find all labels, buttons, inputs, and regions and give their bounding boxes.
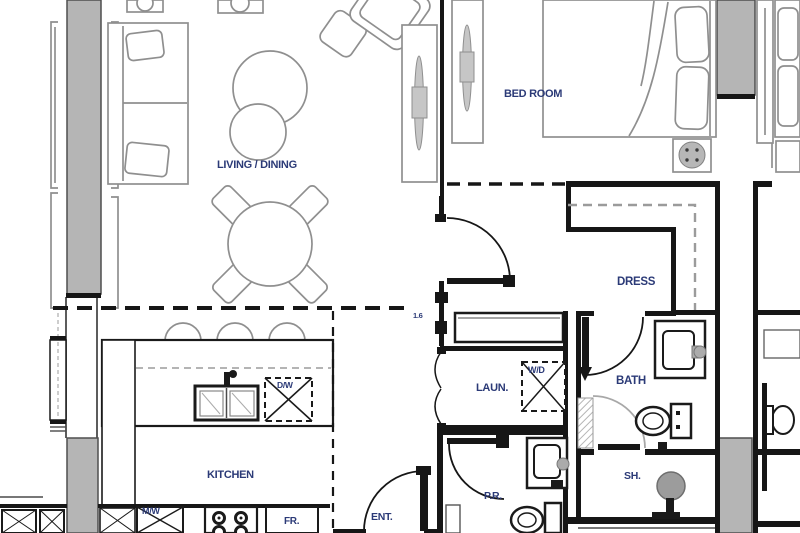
label-powder-room: P.R. — [484, 491, 502, 502]
dining-table-chairs — [210, 184, 330, 305]
label-shower: SH. — [624, 471, 641, 482]
sofa — [108, 23, 188, 184]
stove — [205, 507, 257, 533]
powder-room-toilet — [511, 503, 561, 533]
label-entry: ENT. — [371, 512, 393, 523]
coffee-tables — [230, 51, 307, 160]
adjacent-unit-fragments — [757, 0, 800, 434]
label-dishwasher: D/W — [277, 381, 293, 390]
label-microwave: M/W — [142, 507, 160, 516]
laundry-bifold-door — [435, 352, 441, 424]
hall-closet — [455, 313, 563, 342]
label-dress: DRESS — [617, 277, 655, 289]
label-bath: BATH — [616, 376, 646, 388]
side-tables — [127, 0, 263, 13]
label-kitchen: KITCHEN — [207, 470, 254, 481]
bed — [543, 0, 716, 137]
label-fridge: FR. — [284, 517, 299, 527]
powder-room-vanity-sink — [527, 438, 569, 488]
label-laundry: LAUN. — [476, 383, 508, 394]
bedroom-door — [447, 218, 515, 287]
bath-vanity-sink — [655, 321, 706, 378]
pantry-shaft — [50, 313, 66, 431]
label-living-dining: LIVING / DINING — [217, 160, 297, 171]
label-bedroom: BED ROOM — [504, 89, 562, 100]
shower-drain — [657, 472, 685, 500]
shower-fixture — [652, 498, 680, 519]
label-washer-dryer: W/D — [528, 366, 545, 375]
nightstand-lamp — [673, 139, 711, 172]
entry-cabinet — [446, 505, 460, 533]
floor-plan-drawing — [0, 0, 800, 533]
label-hall-dimension: 1.6 — [413, 312, 423, 320]
bath-door — [578, 317, 643, 381]
bar-stools — [165, 323, 305, 341]
floor-plan: LIVING / DINING BED ROOM DRESS LAUN. BAT… — [0, 0, 800, 533]
